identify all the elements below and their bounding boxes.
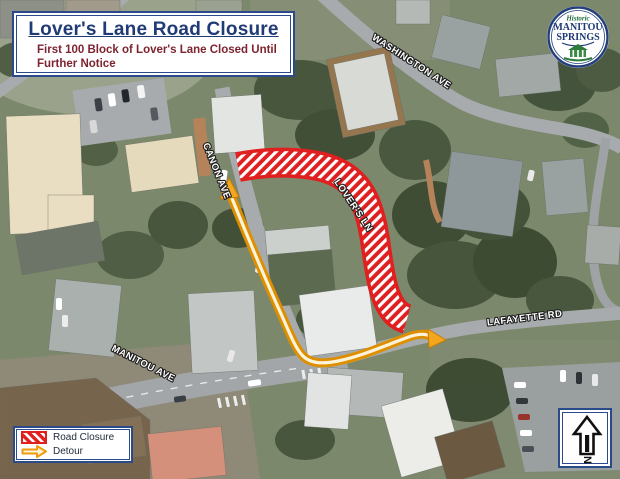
legend-label-road-closure: Road Closure [53, 432, 114, 443]
manitou-springs-logo: Historic MANITOU SPRINGS [546, 5, 610, 69]
map-subtitle: First 100 Block of Lover's Lane Closed U… [37, 43, 287, 72]
legend: Road Closure Detour [13, 426, 133, 463]
map-title: Lover's Lane Road Closure [23, 19, 284, 41]
title-box: Lover's Lane Road Closure First 100 Bloc… [12, 11, 295, 77]
legend-row-detour: Detour [21, 445, 125, 458]
road-closure-swatch [21, 431, 47, 444]
north-label: N [581, 456, 593, 464]
subtitle-line-1: First 100 Block of Lover's Lane Closed U… [37, 43, 287, 57]
north-arrow-icon: N [563, 413, 611, 467]
detour-arrow-icon [21, 445, 47, 458]
logo-springs: SPRINGS [556, 32, 600, 43]
road-closure-map: WASHINGTON AVE CANON AVE LOVER'S LN LAFA… [0, 0, 620, 479]
north-arrow: N [558, 408, 612, 468]
legend-label-detour: Detour [53, 446, 83, 457]
subtitle-line-2: Further Notice [37, 57, 287, 71]
legend-row-closure: Road Closure [21, 431, 125, 444]
